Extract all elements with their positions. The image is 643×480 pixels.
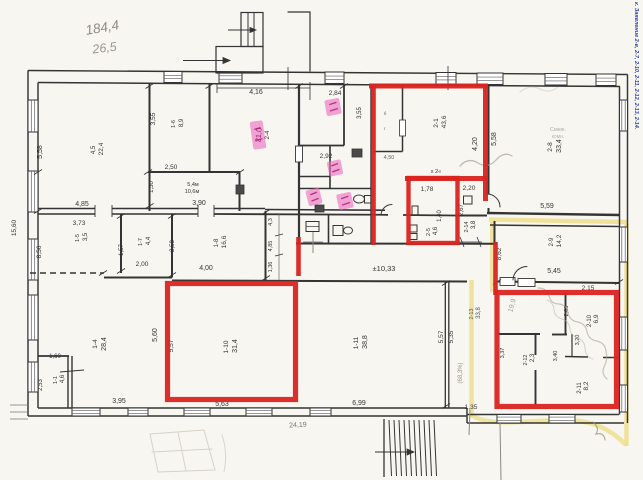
svg-text:2,20: 2,20	[463, 185, 476, 192]
svg-text:2,53: 2,53	[38, 379, 44, 391]
svg-text:Смеж.: Смеж.	[550, 127, 566, 133]
svg-text:3,37: 3,37	[500, 348, 506, 359]
svg-text:4,5: 4,5	[91, 145, 97, 154]
svg-text:3,73: 3,73	[73, 220, 86, 227]
svg-text:43,6: 43,6	[441, 115, 448, 128]
svg-text:1-1: 1-1	[53, 376, 59, 384]
svg-text:3,90: 3,90	[192, 200, 206, 207]
svg-text:1-5: 1-5	[75, 234, 81, 242]
svg-text:2,92: 2,92	[320, 153, 333, 160]
svg-text:15,60: 15,60	[11, 219, 18, 236]
svg-text:3,95: 3,95	[112, 398, 126, 405]
svg-text:31,4: 31,4	[232, 339, 239, 353]
svg-text:2,58: 2,58	[170, 240, 176, 252]
svg-text:5,58: 5,58	[37, 145, 44, 159]
svg-text:4,50: 4,50	[384, 155, 395, 161]
svg-text:4,4: 4,4	[146, 236, 152, 245]
svg-text:5,58: 5,58	[491, 132, 498, 146]
svg-text:1-7: 1-7	[138, 238, 144, 246]
svg-text:2,67: 2,67	[459, 204, 465, 216]
svg-text:1,36: 1,36	[268, 262, 274, 273]
svg-text:4,85: 4,85	[268, 241, 274, 252]
svg-text:10,6м: 10,6м	[185, 189, 200, 195]
svg-text:3,55: 3,55	[150, 112, 157, 125]
svg-text:1,57: 1,57	[119, 244, 125, 256]
svg-text:8,2: 8,2	[583, 381, 590, 390]
svg-text:2-13: 2-13	[469, 308, 475, 319]
svg-text:6,99: 6,99	[352, 400, 366, 407]
svg-text:комн.: комн.	[552, 134, 565, 140]
svg-text:1-6: 1-6	[171, 120, 177, 128]
svg-text:5,59: 5,59	[540, 203, 554, 210]
svg-text:22,4: 22,4	[98, 142, 105, 155]
svg-text:1,78: 1,78	[421, 186, 434, 193]
svg-text:3,5: 3,5	[83, 232, 89, 241]
svg-text:2-1: 2-1	[433, 118, 440, 128]
svg-text:1,60: 1,60	[49, 354, 61, 360]
svg-text:38,8: 38,8	[362, 335, 369, 349]
svg-text:21,0: 21,0	[253, 127, 263, 142]
svg-text:2-8: 2-8	[547, 142, 554, 152]
svg-text:2-14: 2-14	[464, 221, 470, 232]
svg-text:1,40: 1,40	[437, 210, 443, 222]
svg-text:5,4м: 5,4м	[187, 182, 199, 188]
svg-text:4,6: 4,6	[60, 374, 66, 383]
svg-text:4,85: 4,85	[75, 201, 89, 208]
svg-text:4,3: 4,3	[268, 218, 274, 226]
svg-text:8,56: 8,56	[36, 245, 43, 258]
svg-text:б: б	[384, 111, 387, 116]
svg-text:±10,33: ±10,33	[373, 264, 396, 273]
svg-text:5,35: 5,35	[448, 330, 455, 343]
svg-text:2-5: 2-5	[426, 228, 432, 236]
svg-text:8,9: 8,9	[179, 118, 185, 127]
svg-text:4,20: 4,20	[472, 137, 479, 151]
svg-text:4,16: 4,16	[249, 89, 263, 96]
svg-text:4,6: 4,6	[433, 226, 439, 235]
svg-text:3,8: 3,8	[471, 220, 477, 229]
svg-text:1,35: 1,35	[465, 404, 478, 411]
svg-text:(68,3%): (68,3%)	[458, 362, 464, 383]
svg-text:3,40: 3,40	[553, 351, 559, 362]
svg-text:4,00: 4,00	[199, 265, 213, 272]
svg-text:1,50: 1,50	[149, 181, 155, 193]
svg-text:6,9: 6,9	[593, 314, 600, 323]
svg-text:2-12: 2-12	[523, 354, 529, 365]
svg-text:3,20: 3,20	[575, 335, 581, 346]
svg-text:2,84: 2,84	[329, 90, 342, 97]
svg-text:3,55: 3,55	[357, 107, 363, 119]
svg-text:28,4: 28,4	[101, 337, 108, 351]
svg-text:5,60: 5,60	[152, 328, 159, 342]
svg-text:2,3: 2,3	[530, 353, 536, 362]
svg-text:24,19: 24,19	[289, 422, 307, 430]
svg-text:1-10: 1-10	[223, 340, 230, 353]
svg-text:2-4: 2-4	[265, 130, 271, 139]
svg-text:5,57: 5,57	[438, 330, 445, 343]
svg-text:к. Заявление 2-в, 2-7, 2-10, 2: к. Заявление 2-в, 2-7, 2-10, 2-11, 2-12,…	[633, 2, 639, 130]
svg-text:2,00: 2,00	[136, 261, 149, 268]
svg-text:16,6: 16,6	[221, 235, 228, 248]
svg-text:33,8: 33,8	[476, 307, 482, 319]
svg-text:14,2: 14,2	[556, 234, 563, 247]
svg-text:1-4: 1-4	[92, 339, 99, 349]
svg-text:х 2«: х 2«	[431, 169, 441, 175]
svg-text:2,50: 2,50	[165, 164, 178, 171]
svg-text:1-8: 1-8	[214, 238, 220, 247]
svg-text:33,4: 33,4	[556, 139, 563, 153]
svg-text:1-11: 1-11	[353, 336, 360, 349]
svg-text:5,45: 5,45	[547, 268, 561, 275]
svg-text:2-9: 2-9	[549, 237, 555, 246]
